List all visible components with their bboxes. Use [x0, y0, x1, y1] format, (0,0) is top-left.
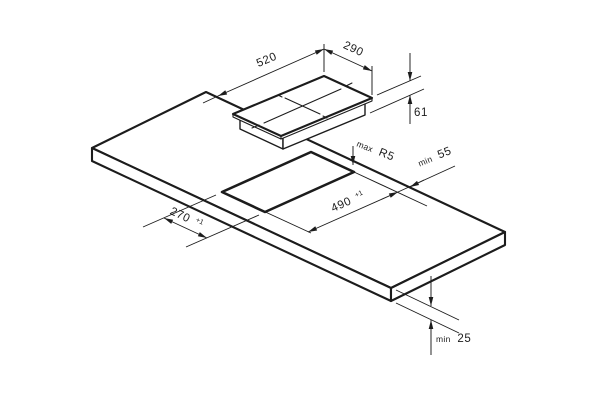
- dim-corner-radius: max R5: [353, 138, 396, 165]
- corner-radius-value: R5: [377, 147, 396, 164]
- rear-clearance-label: min 55: [416, 145, 453, 169]
- hob-length-label: 520: [255, 51, 279, 70]
- dim-55-tail: [398, 166, 455, 192]
- dim-55-arrow: [410, 180, 424, 187]
- dim-hob-height: 61: [370, 53, 428, 124]
- cutout-depth-tolerance: +1: [194, 217, 204, 227]
- dim-61-extension-top: [377, 76, 421, 95]
- hob-height-label: 61: [414, 107, 428, 119]
- cutout-depth-value: 270: [168, 205, 192, 225]
- worktop-thickness-label: min 25: [436, 333, 471, 345]
- rear-clearance-prefix: min: [417, 154, 434, 169]
- technical-drawing-page: 520 290 61 max R5 490 +1 mi: [0, 0, 600, 400]
- worktop-thickness-value: 25: [457, 333, 471, 345]
- corner-radius-prefix: max: [355, 139, 375, 155]
- dim-25-extension-bottom: [396, 303, 459, 333]
- rear-clearance-value: 55: [436, 145, 453, 161]
- worktop-thickness-prefix: min: [436, 334, 451, 344]
- corner-radius-label: max R5: [355, 138, 396, 164]
- hob-depth-label: 290: [341, 39, 365, 59]
- dim-25-extension-top: [396, 290, 459, 320]
- technical-drawing-svg: 520 290 61 max R5 490 +1 mi: [0, 0, 600, 400]
- centerline-long-dash-right: [346, 83, 352, 86]
